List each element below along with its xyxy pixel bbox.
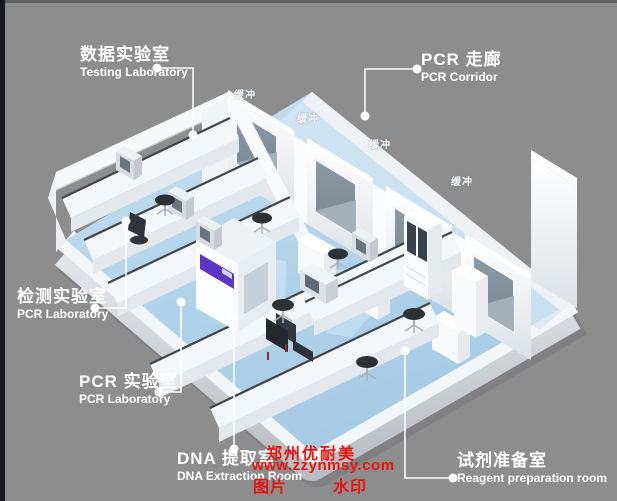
- buffer-tag-2: 缓冲: [297, 110, 319, 125]
- label-detection-laboratory-zh: 检测实验室: [17, 288, 108, 306]
- pillar: [454, 263, 488, 338]
- buffer-tag-3: 缓冲: [369, 136, 391, 151]
- watermark-url: www.zzynmsy.com: [252, 457, 395, 474]
- label-testing-laboratory-zh: 数据实验室: [80, 46, 188, 64]
- label-reagent-preparation-room: 试剂准备室 Reagent preparation room: [457, 452, 607, 484]
- watermark-left-word: 图片: [253, 473, 287, 497]
- label-reagent-preparation-room-en: Reagent preparation room: [457, 472, 607, 485]
- buffer-tag-4: 缓冲: [451, 173, 473, 188]
- buffer-tag-1: 缓冲: [234, 86, 256, 101]
- label-detection-laboratory: 检测实验室 PCR Laboratory: [17, 288, 108, 320]
- label-pcr-corridor: PCR 走廊 PCR Corridor: [421, 51, 502, 83]
- label-pcr-laboratory-zh: PCR 实验室: [79, 373, 178, 391]
- glass-door-cabinet: [404, 208, 442, 300]
- label-pcr-corridor-zh: PCR 走廊: [421, 51, 502, 69]
- label-pcr-laboratory: PCR 实验室 PCR Laboratory: [79, 373, 178, 405]
- label-testing-laboratory-en: Testing Laboratory: [80, 66, 188, 79]
- frame-edge-top: [0, 0, 617, 3]
- label-detection-laboratory-en: PCR Laboratory: [17, 308, 108, 321]
- label-pcr-corridor-en: PCR Corridor: [421, 71, 502, 84]
- watermark-right-word: 水印: [333, 473, 367, 497]
- leader-pcr-corridor: [365, 69, 415, 114]
- frame-edge-left: [0, 0, 5, 501]
- label-testing-laboratory: 数据实验室 Testing Laboratory: [80, 46, 188, 78]
- label-pcr-laboratory-en: PCR Laboratory: [79, 393, 178, 406]
- lab-rendering-screenshot: W: [0, 0, 617, 501]
- label-reagent-preparation-room-zh: 试剂准备室: [457, 452, 607, 470]
